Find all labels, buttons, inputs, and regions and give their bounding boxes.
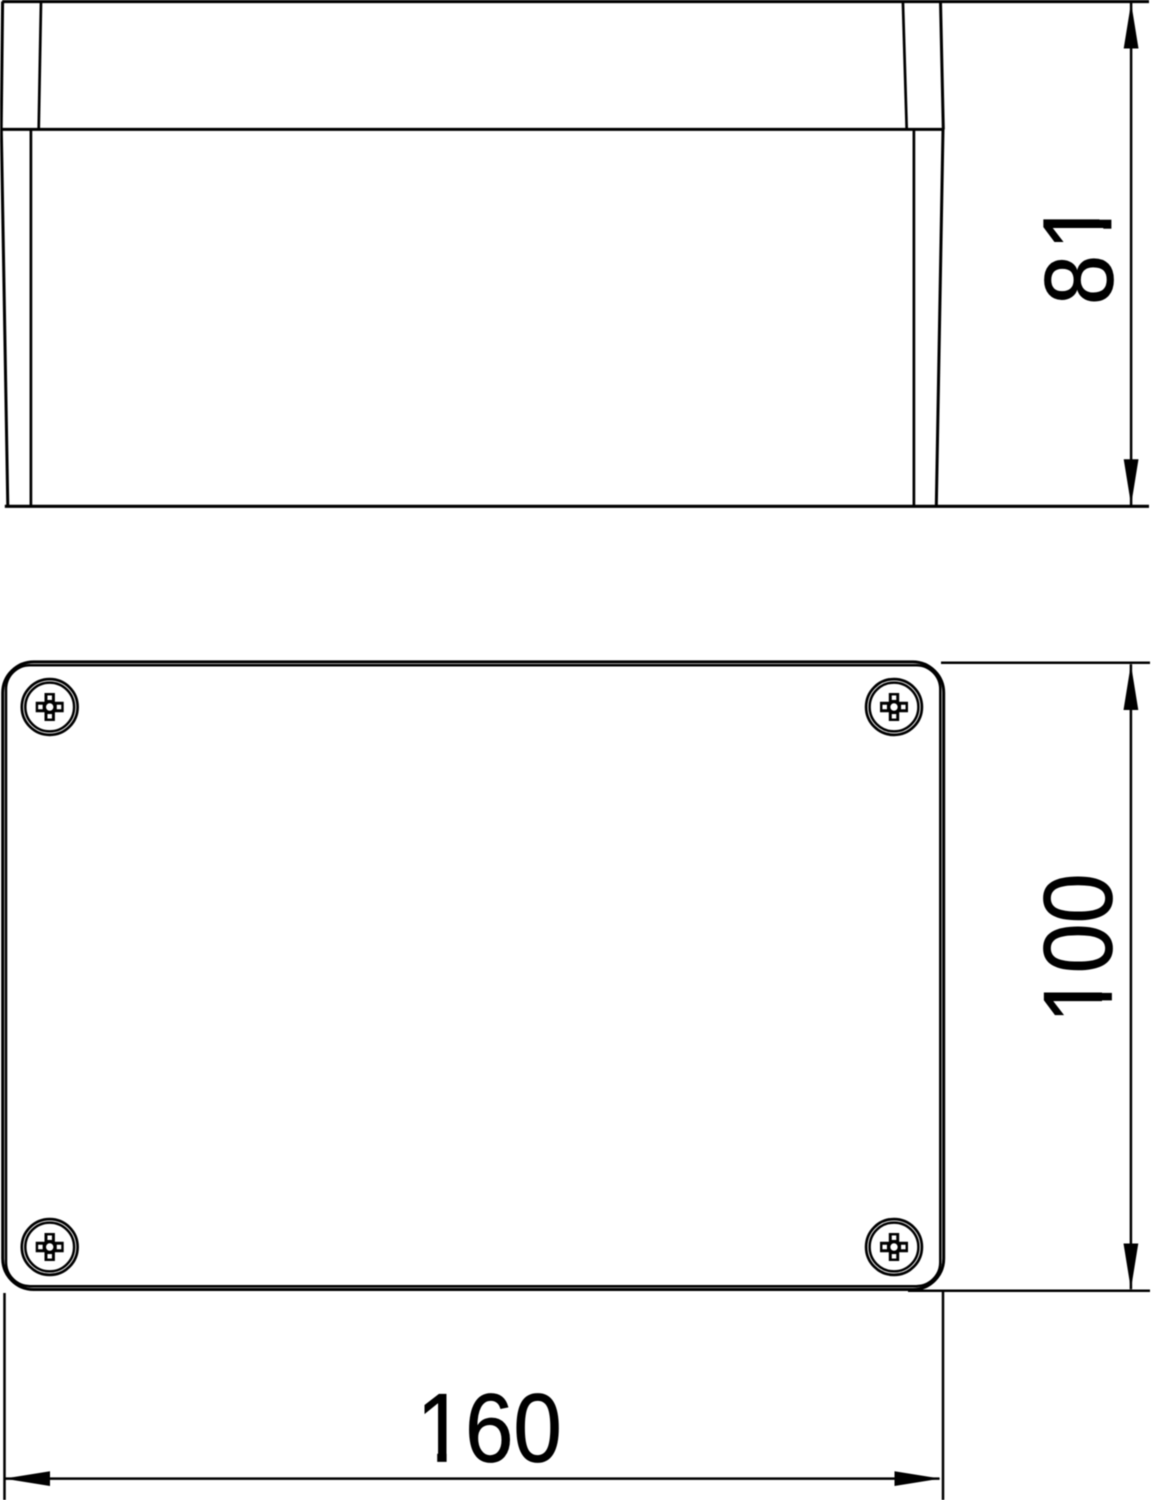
svg-text:8: 8 [1025,255,1134,305]
svg-text:160: 160 [417,1374,562,1483]
svg-text:100: 100 [1023,873,1132,1023]
svg-text:1: 1 [1023,200,1132,250]
